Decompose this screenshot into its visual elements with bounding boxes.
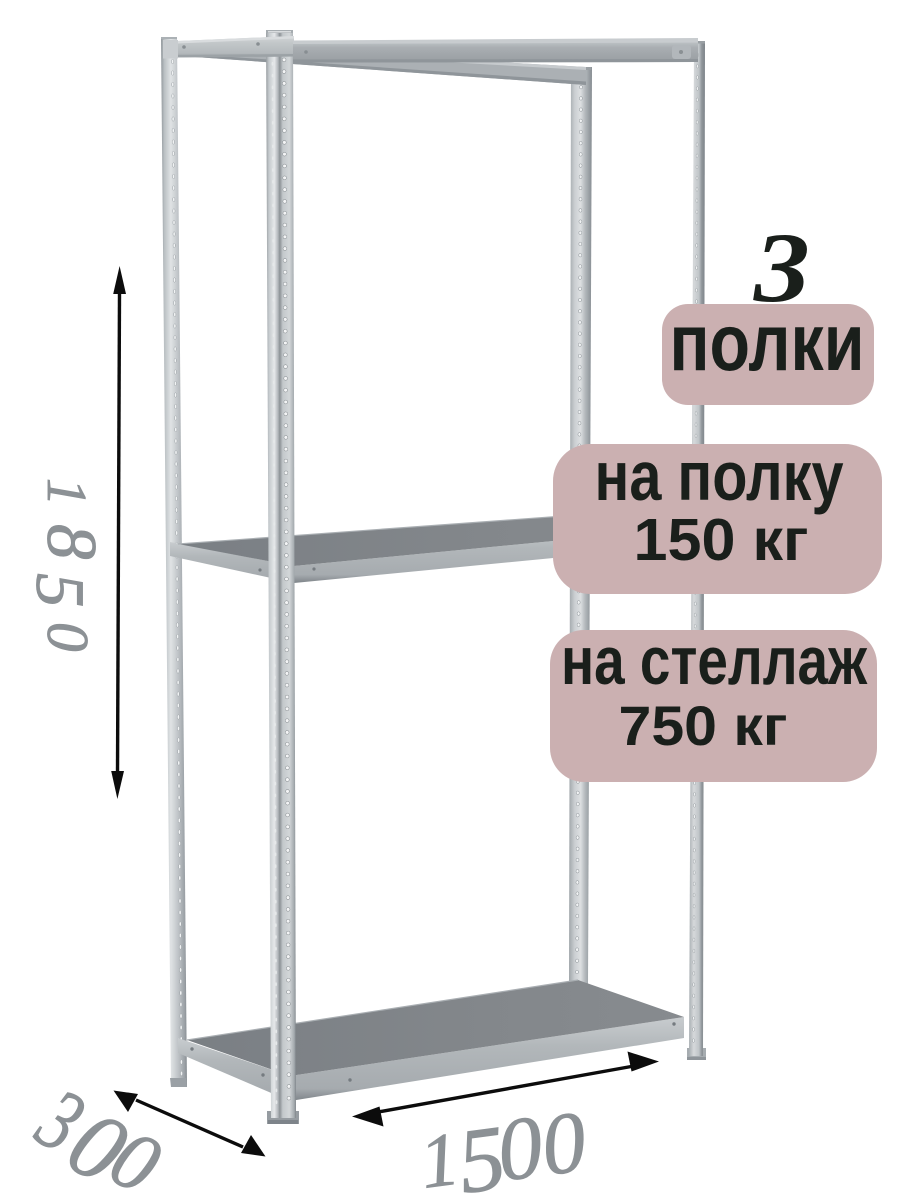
svg-text:750 кг: 750 кг (619, 694, 788, 757)
svg-text:на полку: на полку (595, 437, 844, 515)
svg-text:150 кг: 150 кг (634, 507, 809, 573)
svg-text:полки: полки (670, 298, 865, 388)
svg-text:на стеллаж: на стеллаж (561, 623, 868, 699)
